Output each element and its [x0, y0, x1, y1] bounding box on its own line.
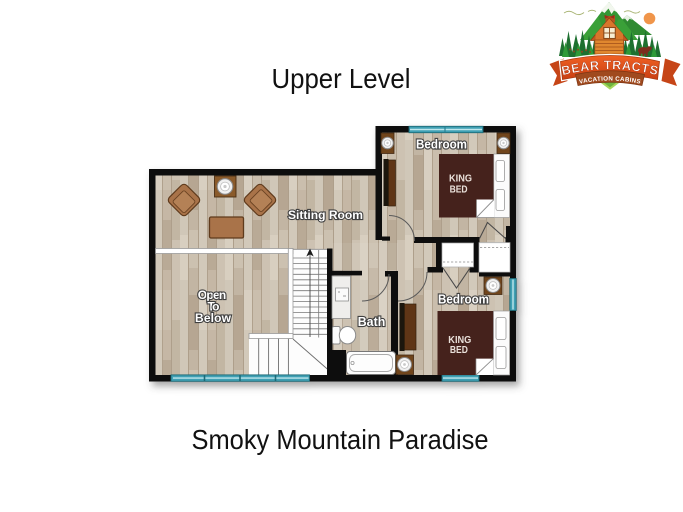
svg-text:Bath: Bath	[358, 315, 386, 329]
svg-text:KING: KING	[449, 174, 472, 185]
svg-text:Bedroom: Bedroom	[416, 138, 467, 152]
svg-text:Upper Level: Upper Level	[272, 63, 411, 94]
svg-text:Below: Below	[195, 311, 232, 325]
svg-text:Bedroom: Bedroom	[438, 293, 489, 307]
svg-text:BED: BED	[450, 345, 468, 356]
svg-text:Sitting Room: Sitting Room	[288, 208, 363, 222]
svg-text:BED: BED	[450, 185, 468, 196]
svg-text:Smoky Mountain Paradise: Smoky Mountain Paradise	[192, 424, 489, 455]
